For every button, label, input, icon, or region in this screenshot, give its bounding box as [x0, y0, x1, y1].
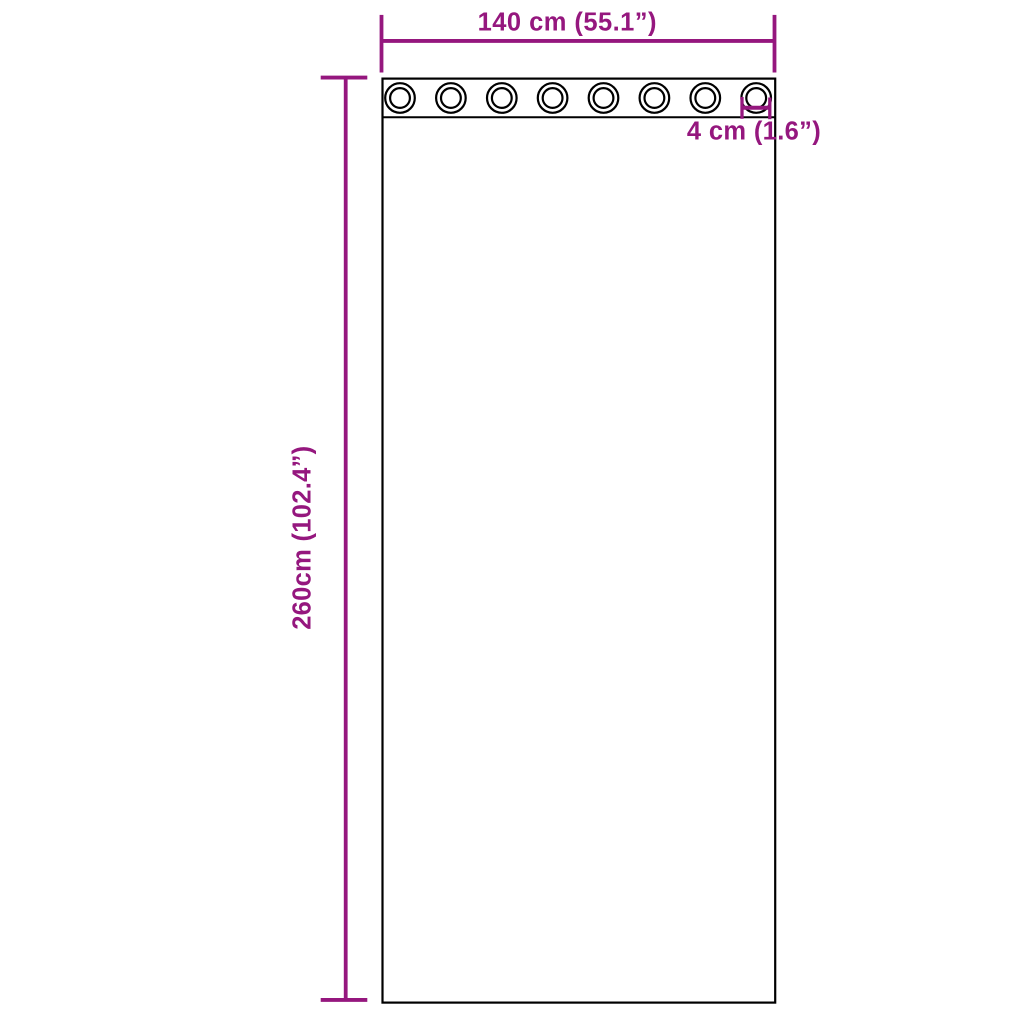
svg-text:260cm (102.4”): 260cm (102.4”)	[289, 446, 317, 630]
svg-text:4 cm (1.6”): 4 cm (1.6”)	[687, 118, 821, 146]
svg-text:140 cm (55.1”): 140 cm (55.1”)	[478, 8, 657, 36]
